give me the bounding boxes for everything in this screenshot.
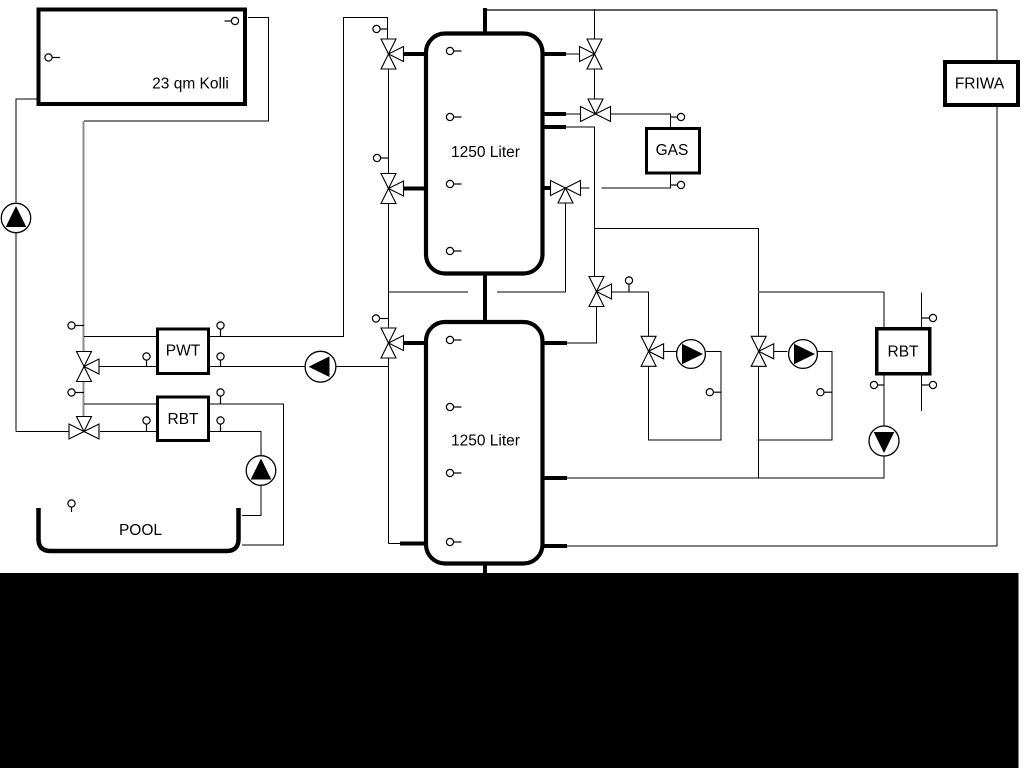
- svg-text:1250 Liter: 1250 Liter: [451, 433, 520, 450]
- svg-text:GAS: GAS: [656, 142, 689, 159]
- svg-text:RBT: RBT: [168, 411, 200, 428]
- svg-text:FRIWA: FRIWA: [955, 76, 1005, 93]
- svg-text:RBT: RBT: [888, 344, 920, 361]
- svg-text:PWT: PWT: [166, 343, 201, 360]
- svg-text:1250 Liter: 1250 Liter: [451, 144, 520, 161]
- svg-text:POOL: POOL: [119, 522, 162, 539]
- svg-text:23 qm Kolli: 23 qm Kolli: [152, 75, 229, 92]
